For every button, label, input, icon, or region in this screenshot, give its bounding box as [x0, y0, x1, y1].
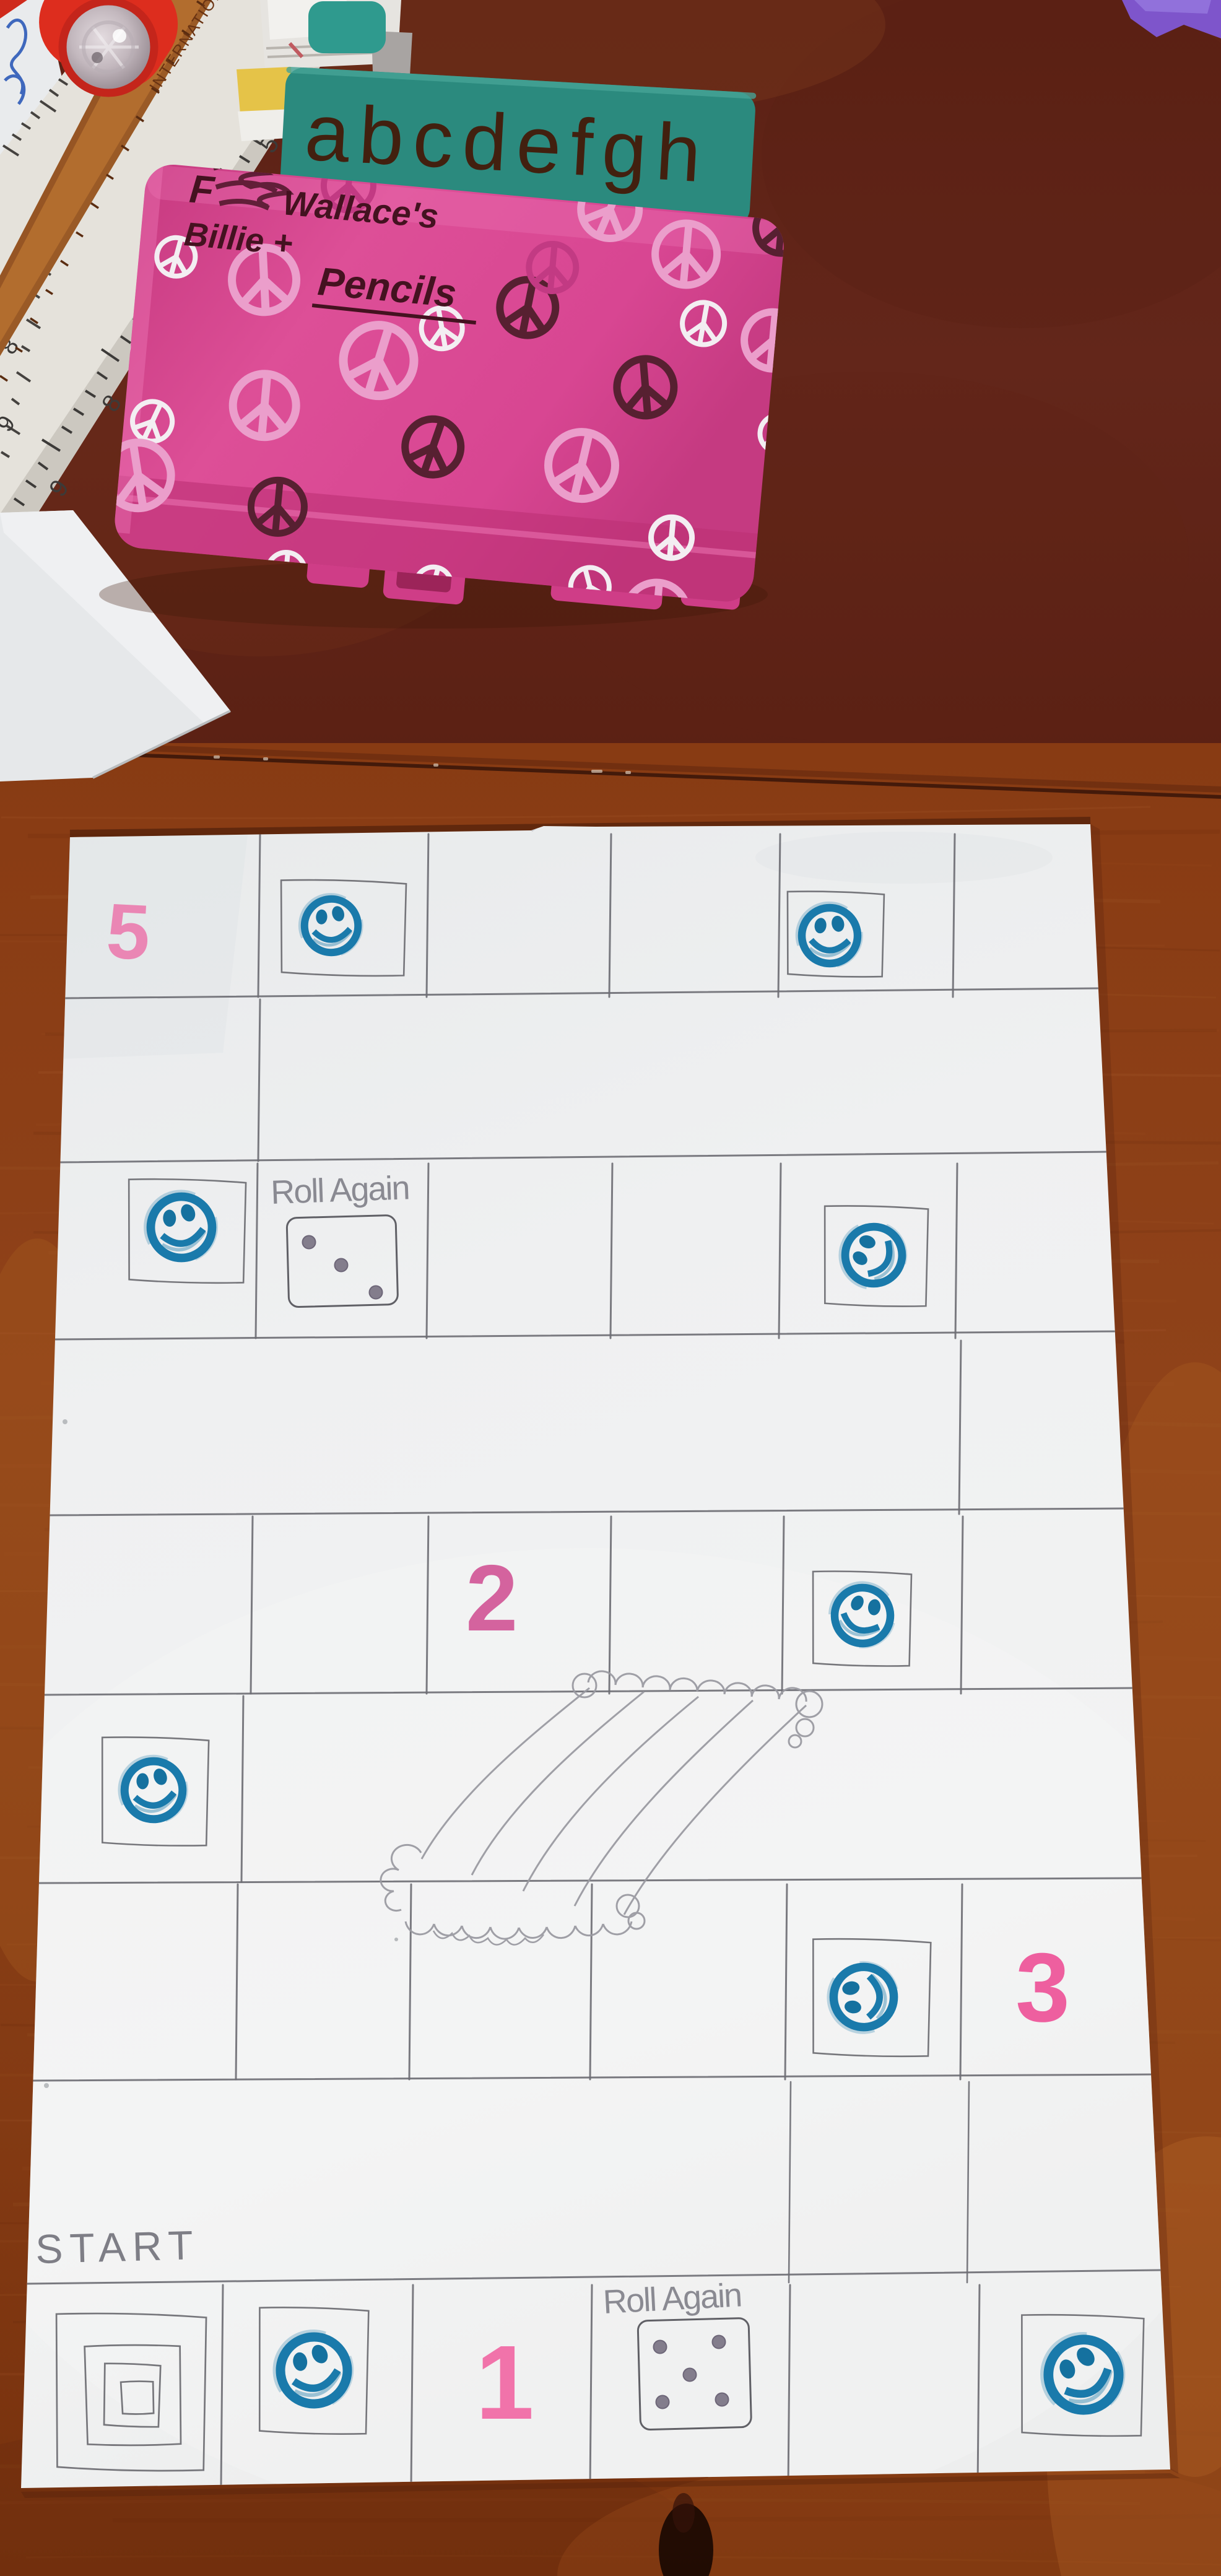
svg-text:Roll Again: Roll Again [602, 2276, 742, 2321]
svg-text:Roll Again: Roll Again [270, 1169, 409, 1211]
svg-text:2: 2 [466, 1546, 518, 1651]
svg-text:5: 5 [105, 887, 152, 976]
svg-text:1: 1 [476, 2324, 534, 2442]
svg-text:3: 3 [1015, 1933, 1070, 2042]
svg-text:START: START [35, 2222, 200, 2272]
